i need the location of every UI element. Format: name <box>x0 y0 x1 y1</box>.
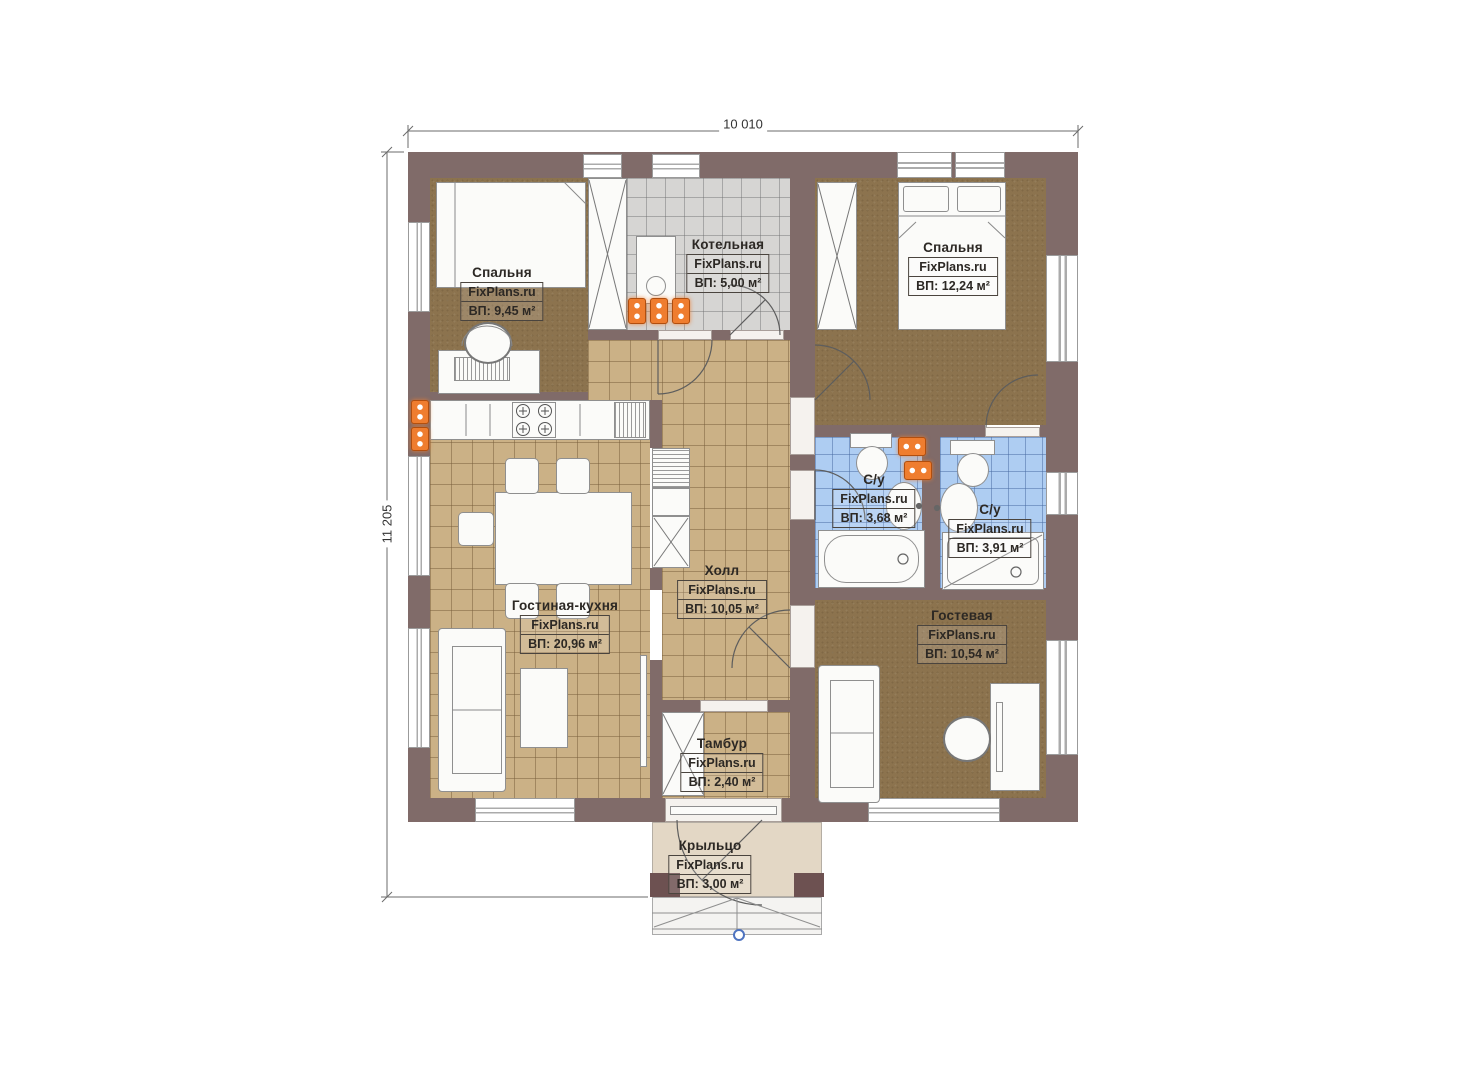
wall-hall-top-b <box>712 330 730 340</box>
window-bathroom2-right <box>1046 472 1078 515</box>
room-area: ВП: 3,91 м² <box>949 538 1030 557</box>
window-living-left <box>408 628 430 748</box>
room-name: С/у <box>948 502 1031 517</box>
wall-kitchen-hall-b <box>650 568 662 590</box>
wardrobe-bedroom1 <box>588 178 627 330</box>
radiator-symbol <box>650 298 668 324</box>
room-label-bathroom-1: С/у FixPlans.ru ВП: 3,68 м² <box>832 472 915 528</box>
fridge <box>652 448 690 488</box>
dishwasher <box>614 402 646 438</box>
room-label-living-kitchen: Гостиная-кухня FixPlans.ru ВП: 20,96 м² <box>512 598 618 654</box>
wall-vestibule-top-b <box>768 700 815 712</box>
radiator-symbol <box>411 400 429 424</box>
brand-watermark: FixPlans.ru <box>949 520 1030 538</box>
door-opening-vestibule <box>700 700 768 712</box>
room-info-plate: FixPlans.ru ВП: 9,45 м² <box>460 282 543 321</box>
room-info-plate: FixPlans.ru ВП: 2,40 м² <box>680 753 763 792</box>
toilet-bowl <box>957 453 989 487</box>
brand-watermark: FixPlans.ru <box>833 490 914 508</box>
floor-hall-extension <box>588 340 662 400</box>
window-bedroom2-right <box>1046 255 1078 362</box>
room-label-bedroom-2: Спальня FixPlans.ru ВП: 12,24 м² <box>908 240 998 296</box>
room-name: С/у <box>832 472 915 487</box>
room-name: Гостевая <box>917 608 1007 623</box>
room-name: Гостиная-кухня <box>512 598 618 613</box>
dimension-width-label: 10 010 <box>719 117 767 132</box>
kitchen-cabinet <box>652 516 690 568</box>
room-area: ВП: 12,24 м² <box>909 276 997 295</box>
room-info-plate: FixPlans.ru ВП: 10,54 м² <box>917 625 1007 664</box>
room-info-plate: FixPlans.ru ВП: 12,24 м² <box>908 257 998 296</box>
window-boiler <box>652 154 700 178</box>
chair-bedroom1 <box>464 322 512 364</box>
brand-watermark: FixPlans.ru <box>681 754 762 772</box>
room-info-plate: FixPlans.ru ВП: 3,91 м² <box>948 519 1031 558</box>
dimension-height-label: 11 205 <box>380 501 395 548</box>
room-area: ВП: 3,00 м² <box>669 874 750 893</box>
dining-chair <box>458 512 494 546</box>
dining-table <box>495 492 632 585</box>
bathtub-inner <box>824 535 919 583</box>
brand-watermark: FixPlans.ru <box>521 616 609 634</box>
wall-hall-right-d <box>790 668 815 798</box>
room-label-guest-room: Гостевая FixPlans.ru ВП: 10,54 м² <box>917 608 1007 664</box>
room-area: ВП: 2,40 м² <box>681 772 762 791</box>
room-label-porch: Крыльцо FixPlans.ru ВП: 3,00 м² <box>668 838 751 894</box>
room-name: Холл <box>677 563 767 578</box>
brand-watermark: FixPlans.ru <box>678 581 766 599</box>
brand-watermark: FixPlans.ru <box>461 283 542 301</box>
brand-watermark: FixPlans.ru <box>918 626 1006 644</box>
radiator-symbol <box>411 427 429 451</box>
kitchen-sink <box>652 488 690 516</box>
room-area: ВП: 3,68 м² <box>833 508 914 527</box>
room-name: Тамбур <box>680 736 763 751</box>
brand-watermark: FixPlans.ru <box>909 258 997 276</box>
tv-stand <box>640 655 647 767</box>
door-opening-bedroom2 <box>790 397 815 455</box>
sofa-living-seat <box>452 646 502 774</box>
room-info-plate: FixPlans.ru ВП: 3,68 м² <box>832 489 915 528</box>
monitor <box>996 702 1003 772</box>
window-bedroom2-top-a <box>897 152 952 178</box>
window-bedroom2-top-b <box>955 152 1005 178</box>
wall-living-vestibule <box>650 660 662 798</box>
room-info-plate: FixPlans.ru ВП: 10,05 м² <box>677 580 767 619</box>
window-bedroom1-left <box>408 222 430 312</box>
wardrobe-bedroom2 <box>817 182 857 330</box>
wall-hall-top-a <box>588 330 658 340</box>
brand-watermark: FixPlans.ru <box>669 856 750 874</box>
room-area: ВП: 9,45 м² <box>461 301 542 320</box>
window-top-small <box>583 154 622 178</box>
room-label-bathroom-2: С/у FixPlans.ru ВП: 3,91 м² <box>948 502 1031 558</box>
room-area: ВП: 20,96 м² <box>521 634 609 653</box>
room-area: ВП: 5,00 м² <box>687 273 768 292</box>
door-opening-ensuite <box>985 427 1040 437</box>
office-chair <box>943 716 991 762</box>
boiler-gauge <box>646 276 666 296</box>
entrance-door-leaf <box>670 806 777 815</box>
radiator-symbol <box>628 298 646 324</box>
room-name: Спальня <box>908 240 998 255</box>
room-info-plate: FixPlans.ru ВП: 5,00 м² <box>686 254 769 293</box>
floor-plan-canvas: 10 010 11 205 Спальня FixPlans.ru ВП: 9,… <box>0 0 1474 1080</box>
wall-hall-right-b <box>790 455 815 470</box>
step-center-marker <box>733 929 745 941</box>
wall-hall-right-a <box>790 178 815 397</box>
coffee-table <box>520 668 568 748</box>
room-label-boiler-room: Котельная FixPlans.ru ВП: 5,00 м² <box>686 237 769 293</box>
wall-bedroom2-bath-b <box>1040 425 1046 437</box>
wall-hall-right-c <box>790 520 815 605</box>
wall-vestibule-top-a <box>652 700 700 712</box>
room-label-hall: Холл FixPlans.ru ВП: 10,05 м² <box>677 563 767 619</box>
dining-chair <box>505 458 539 494</box>
room-area: ВП: 10,54 м² <box>918 644 1006 663</box>
room-info-plate: FixPlans.ru ВП: 20,96 м² <box>520 615 610 654</box>
room-name: Крыльцо <box>668 838 751 853</box>
window-guest-bottom <box>868 798 1000 822</box>
window-kitchen-left <box>408 456 430 576</box>
radiator-symbol <box>672 298 690 324</box>
sofa-guest-seat <box>830 680 874 788</box>
porch-pillar-right <box>794 873 824 897</box>
pillow <box>957 186 1001 212</box>
wall-kitchen-hall-a <box>650 400 662 448</box>
door-opening-boiler <box>730 330 784 340</box>
wall-bedroom2-bath-a <box>815 425 985 437</box>
door-opening-guest <box>790 605 815 668</box>
room-area: ВП: 10,05 м² <box>678 599 766 618</box>
dining-chair <box>556 458 590 494</box>
radiator-symbol <box>898 437 926 456</box>
room-name: Котельная <box>686 237 769 252</box>
pillow <box>903 186 949 212</box>
room-label-vestibule: Тамбур FixPlans.ru ВП: 2,40 м² <box>680 736 763 792</box>
stove <box>512 402 556 438</box>
window-living-bottom <box>475 798 575 822</box>
room-label-bedroom-1: Спальня FixPlans.ru ВП: 9,45 м² <box>460 265 543 321</box>
door-opening-bedroom1 <box>658 330 712 340</box>
brand-watermark: FixPlans.ru <box>687 255 768 273</box>
door-opening-bathroom1 <box>790 470 815 520</box>
window-guest-right <box>1046 640 1078 755</box>
room-name: Спальня <box>460 265 543 280</box>
room-info-plate: FixPlans.ru ВП: 3,00 м² <box>668 855 751 894</box>
